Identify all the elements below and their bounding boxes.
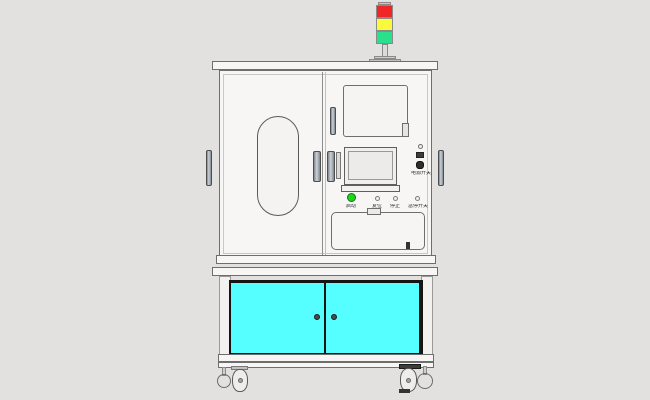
leveling-foot-right — [417, 373, 433, 389]
door-knob-left — [314, 314, 320, 320]
door-gap-line — [322, 72, 323, 256]
start-button — [347, 193, 356, 202]
center-door-handle-left — [313, 151, 321, 182]
estop-button-label: 急停开关 — [404, 204, 432, 209]
bottom-rail-upper — [218, 354, 434, 362]
display-panel-tab — [402, 123, 409, 137]
table-top-rail — [212, 267, 438, 276]
signal-light-red — [376, 5, 393, 18]
divider-latch — [330, 107, 336, 135]
estop-button — [415, 196, 420, 201]
tray-panel-latch — [406, 242, 410, 249]
caster-wheel-left — [232, 369, 248, 392]
cabinet-top-rail — [212, 61, 438, 70]
lower-door-right — [326, 283, 419, 353]
exterior-handle-right — [438, 150, 444, 186]
lower-door-left — [231, 283, 324, 353]
tray-panel-tab — [367, 208, 381, 215]
hmi-base — [341, 185, 400, 192]
usb-port — [416, 152, 424, 158]
start-button-label: 启动 — [341, 204, 361, 209]
caster-hub-left — [238, 378, 243, 383]
stop-button-label: 停止 — [385, 204, 405, 209]
door-knob-right — [331, 314, 337, 320]
lower-door-frame — [229, 280, 423, 356]
caster-brake-right — [399, 389, 410, 393]
hmi-screen — [348, 151, 393, 180]
exterior-handle-left — [206, 150, 212, 186]
power-switch-label: 电源开关 — [404, 171, 438, 176]
door-gap-line-2 — [325, 72, 326, 256]
signal-light-green — [376, 31, 393, 44]
caster-hub-right — [406, 378, 411, 383]
stop-button — [393, 196, 398, 201]
display-panel — [343, 85, 408, 137]
reset-button — [375, 196, 380, 201]
leveling-foot-left — [217, 374, 231, 388]
machine-drawing-canvas: 电源开关 启动 复位 停止 急停开关 — [0, 0, 650, 400]
indicator-lamp — [418, 144, 423, 149]
tray-panel — [331, 212, 425, 250]
key-switch — [416, 161, 424, 169]
left-door-window — [257, 116, 299, 216]
center-door-handle-right — [327, 151, 335, 182]
hmi-side-bracket — [336, 152, 341, 179]
upper-cabinet-bottom-rail — [216, 255, 436, 264]
signal-light-yellow — [376, 18, 393, 31]
